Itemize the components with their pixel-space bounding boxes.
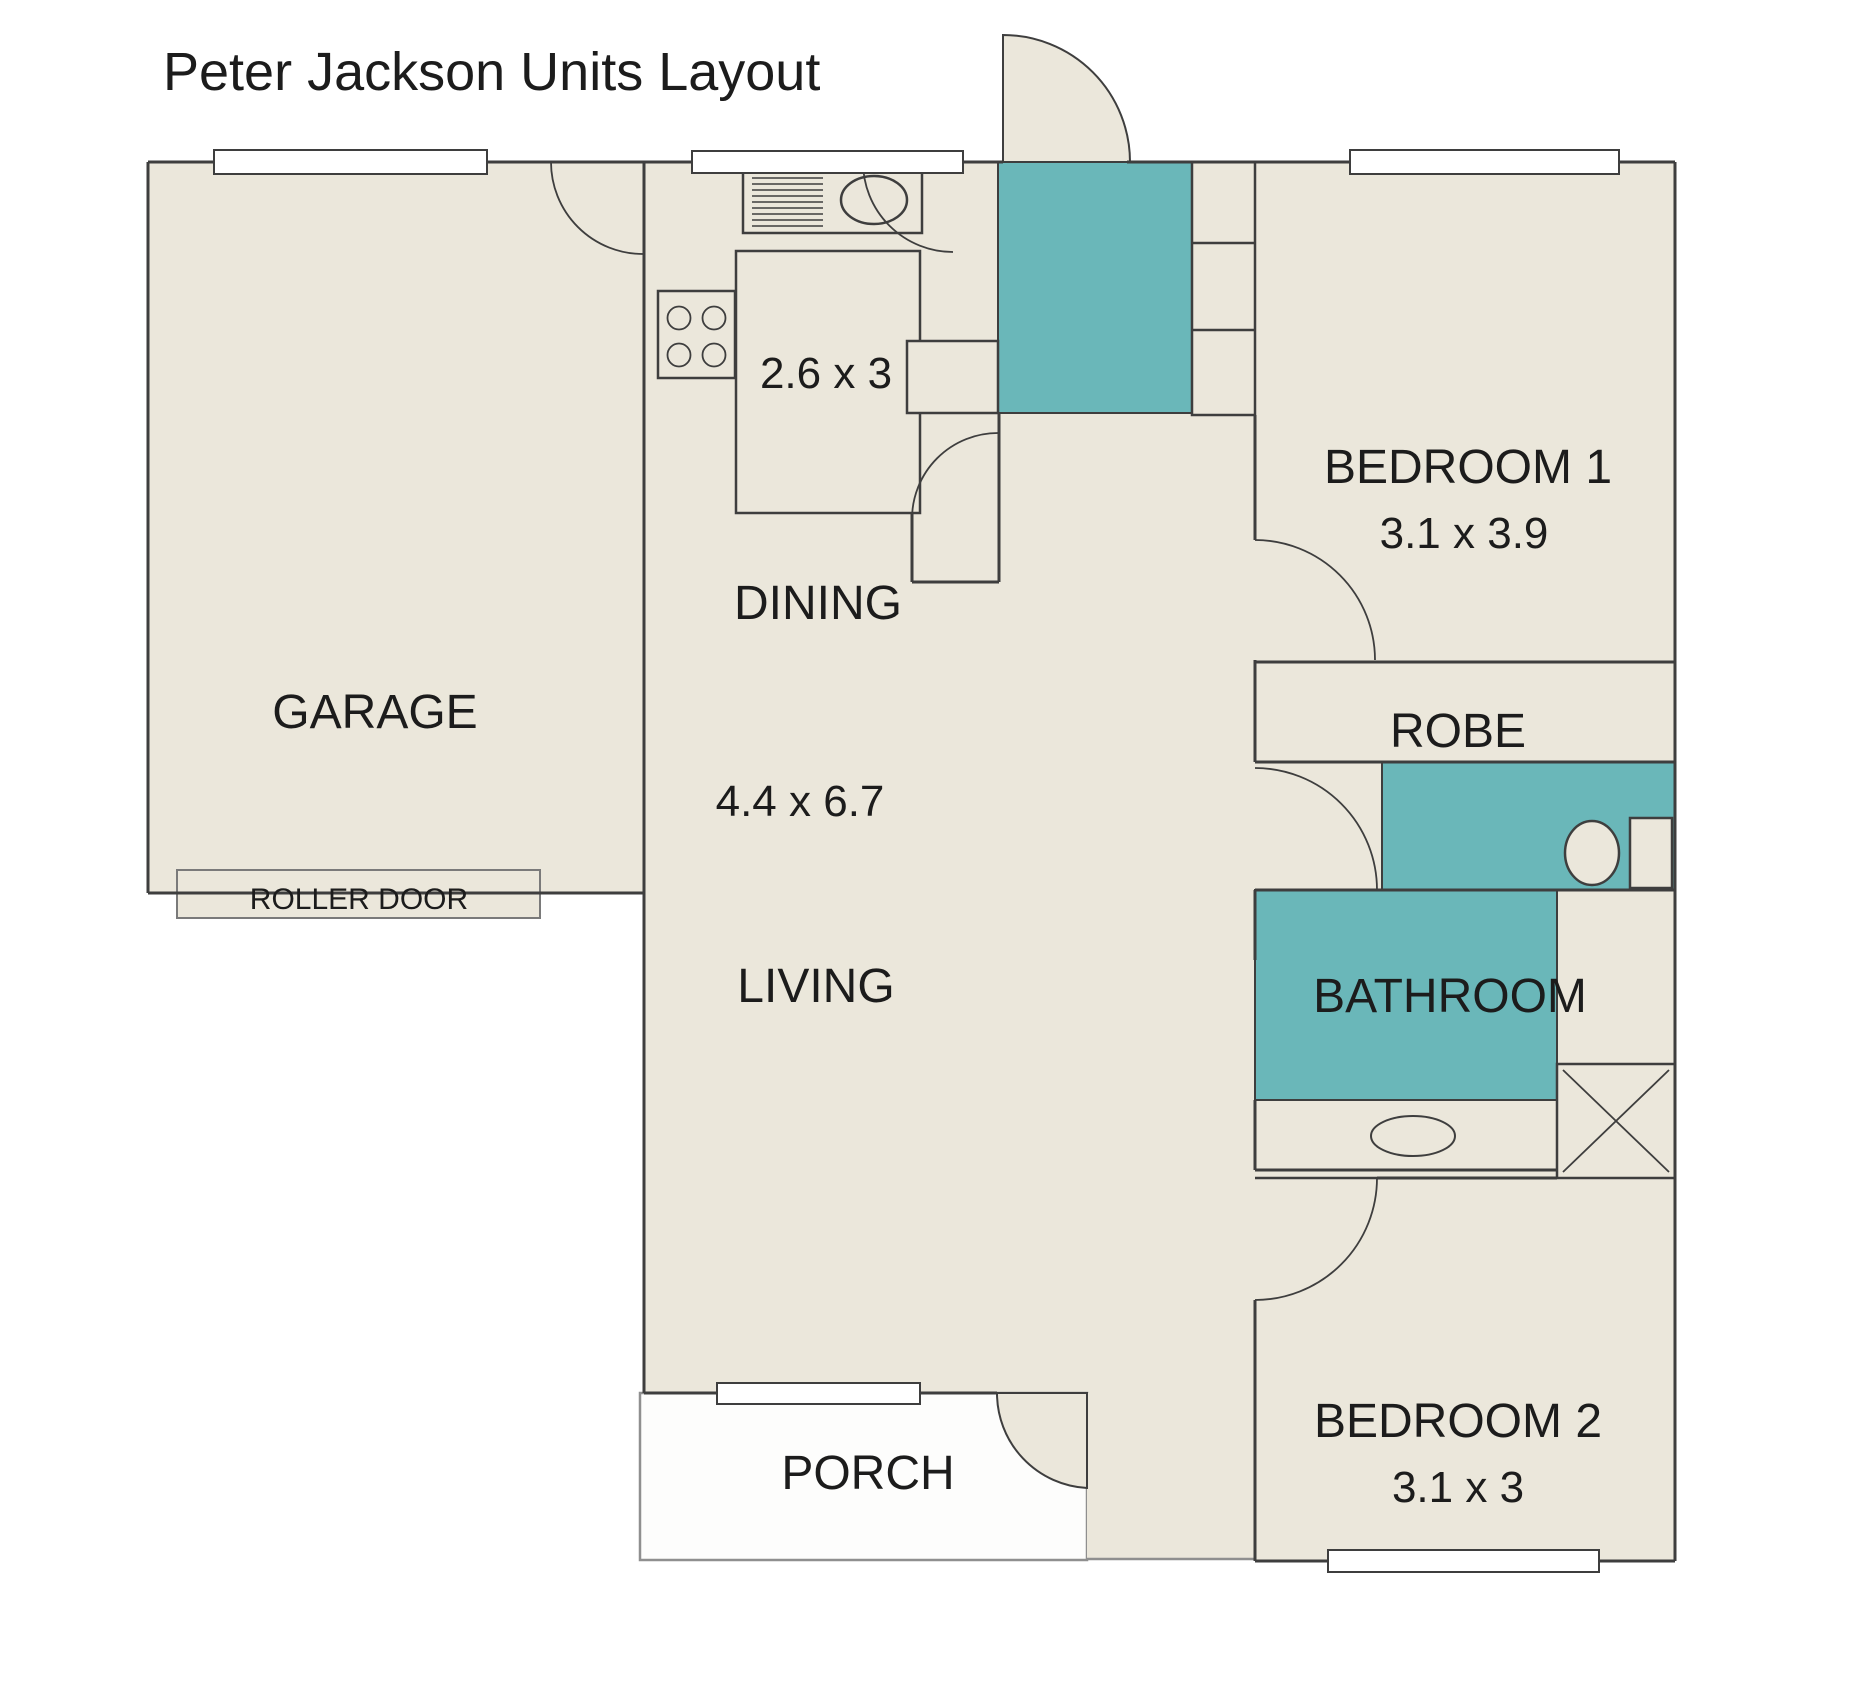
label-bedroom2: BEDROOM 2: [1314, 1395, 1602, 1448]
kitchen-bench: [907, 341, 998, 413]
floor-plan-page: Peter Jackson Units Layout GARAGE ROLLER…: [0, 0, 1850, 1685]
floor-plan-canvas: Peter Jackson Units Layout GARAGE ROLLER…: [0, 0, 1850, 1685]
stove-burner-icon: [703, 307, 726, 330]
page-title: Peter Jackson Units Layout: [163, 42, 820, 102]
stove-burner-icon: [668, 307, 691, 330]
label-bedroom1-dimensions: 3.1 x 3.9: [1380, 509, 1549, 558]
stove-burner-icon: [703, 344, 726, 367]
sink-basin-icon: [841, 176, 907, 224]
label-bedroom2-dimensions: 3.1 x 3: [1392, 1463, 1524, 1512]
entry-hall-floor: [998, 162, 1192, 413]
label-living: LIVING: [737, 960, 894, 1013]
toilet-tank-icon: [1630, 818, 1672, 888]
bedroom2-window: [1328, 1550, 1599, 1572]
garage-floor: [148, 162, 644, 893]
label-dining: DINING: [734, 577, 902, 630]
label-bathroom: BATHROOM: [1313, 970, 1587, 1023]
label-kitchen-dimensions: 2.6 x 3: [760, 349, 892, 398]
stove-burner-icon: [668, 344, 691, 367]
label-porch: PORCH: [781, 1447, 954, 1500]
linen-cupboard: [1192, 162, 1255, 415]
stove: [658, 291, 735, 378]
label-robe: ROBE: [1390, 705, 1526, 758]
hallway-floor: [1087, 1393, 1255, 1559]
kitchen-window: [692, 151, 963, 173]
toilet-bowl-icon: [1565, 821, 1619, 885]
living-window: [717, 1383, 920, 1404]
bedroom1-window: [1350, 150, 1619, 174]
vanity-basin-icon: [1371, 1116, 1455, 1156]
label-garage: GARAGE: [272, 686, 477, 739]
entry-door-leaf: [1003, 35, 1130, 162]
garage-window: [214, 150, 487, 174]
label-dining-dimensions: 4.4 x 6.7: [716, 777, 885, 826]
label-bedroom1: BEDROOM 1: [1324, 441, 1612, 494]
label-roller-door: ROLLER DOOR: [250, 883, 468, 916]
